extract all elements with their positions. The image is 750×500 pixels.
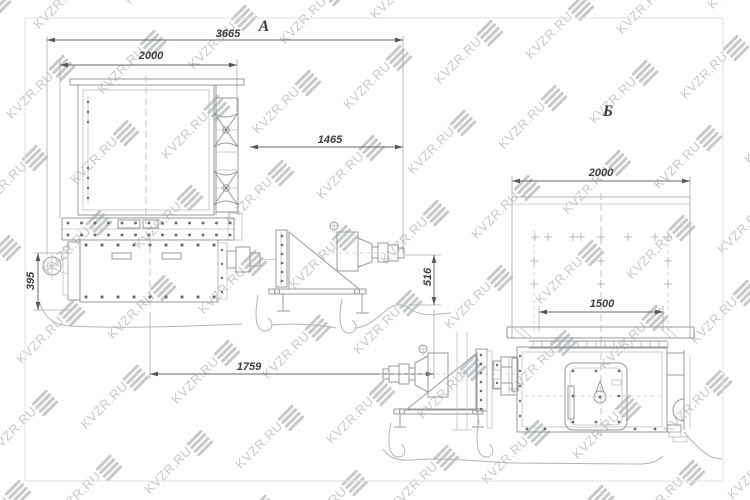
view-a-fan-2: [214, 171, 238, 205]
technical-drawing: [0, 0, 750, 500]
view-a-extension-lines: [33, 36, 441, 379]
drawing-canvas: KVZR.RUKVZR.RUKVZR.RUKVZR.RUKVZR.RUKVZR.…: [0, 0, 750, 500]
view-a-dimension-lines: [36, 38, 437, 377]
view-a-baseline: [40, 295, 451, 333]
view-a-shaft-coupling: [227, 247, 276, 272]
view-a-drawing: [33, 36, 451, 379]
view-a-lower-housing: [63, 236, 227, 306]
view-b-drawing: [380, 176, 722, 464]
view-a-support-wheel: [43, 254, 68, 280]
view-b-drive-bracket: [394, 332, 518, 430]
view-b-lower-housing: [494, 342, 690, 442]
view-a-fan-1: [214, 113, 238, 147]
drawing-frame: [25, 18, 723, 481]
view-a-upper-housing: [70, 76, 244, 240]
view-b-shelf: [507, 327, 694, 348]
view-a-flange: [62, 218, 234, 240]
view-a-motor: [330, 222, 408, 271]
